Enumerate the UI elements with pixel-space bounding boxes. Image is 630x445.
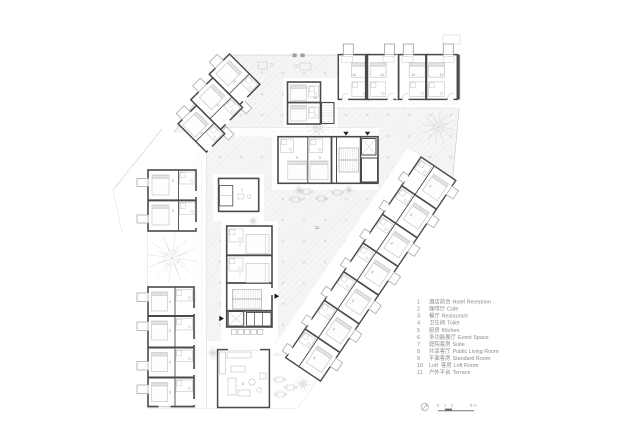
svg-text:Terrace: Terrace bbox=[453, 370, 471, 376]
svg-text:8: 8 bbox=[242, 382, 244, 386]
svg-text:卫生间: 卫生间 bbox=[429, 319, 445, 327]
svg-text:餐厅: 餐厅 bbox=[429, 312, 440, 320]
svg-text:10: 10 bbox=[313, 96, 317, 100]
svg-text:9: 9 bbox=[172, 209, 174, 213]
svg-text:酒店前台: 酒店前台 bbox=[429, 298, 451, 306]
svg-text:6: 6 bbox=[417, 335, 420, 341]
svg-text:Cafe: Cafe bbox=[447, 307, 458, 313]
svg-text:咖啡厅: 咖啡厅 bbox=[429, 305, 446, 313]
svg-text:2: 2 bbox=[417, 307, 420, 313]
svg-text:2: 2 bbox=[241, 188, 243, 192]
svg-text:7: 7 bbox=[239, 244, 241, 248]
svg-text:1: 1 bbox=[417, 300, 420, 306]
svg-text:Kitchen: Kitchen bbox=[442, 328, 460, 334]
svg-text:5: 5 bbox=[417, 328, 420, 334]
svg-text:Loft Room: Loft Room bbox=[454, 363, 479, 369]
svg-text:9: 9 bbox=[169, 300, 171, 304]
svg-text:Suite: Suite bbox=[453, 342, 465, 348]
svg-text:9: 9 bbox=[172, 179, 174, 183]
svg-text:Toilet: Toilet bbox=[447, 321, 460, 327]
svg-text:共享客厅: 共享客厅 bbox=[429, 347, 451, 355]
svg-text:5 m: 5 m bbox=[470, 402, 477, 407]
svg-text:10: 10 bbox=[381, 73, 385, 77]
svg-text:10: 10 bbox=[417, 363, 423, 369]
svg-text:7: 7 bbox=[417, 342, 420, 348]
svg-text:10: 10 bbox=[440, 73, 444, 77]
svg-text:Hotel Reception: Hotel Reception bbox=[453, 300, 491, 306]
svg-text:庭院套房: 庭院套房 bbox=[429, 340, 451, 348]
svg-text:11: 11 bbox=[315, 225, 320, 230]
svg-text:11: 11 bbox=[417, 370, 423, 376]
svg-text:客房: 客房 bbox=[441, 361, 452, 369]
svg-text:Restaurant: Restaurant bbox=[442, 314, 469, 320]
svg-text:Standard Room: Standard Room bbox=[453, 356, 491, 362]
svg-text:9: 9 bbox=[319, 156, 321, 160]
svg-text:9: 9 bbox=[417, 356, 420, 362]
svg-text:平面客房: 平面客房 bbox=[429, 354, 451, 362]
svg-text:9: 9 bbox=[169, 361, 171, 365]
svg-text:厨房: 厨房 bbox=[429, 326, 440, 334]
svg-text:10: 10 bbox=[411, 73, 415, 77]
svg-text:9: 9 bbox=[296, 156, 298, 160]
svg-text:4: 4 bbox=[417, 321, 420, 327]
svg-text:Loft: Loft bbox=[429, 363, 438, 369]
svg-text:多功能展厅: 多功能展厅 bbox=[429, 333, 457, 341]
svg-text:8: 8 bbox=[417, 349, 420, 355]
svg-text:3: 3 bbox=[417, 314, 420, 320]
svg-text:9: 9 bbox=[169, 329, 171, 333]
svg-text:Public Living Room: Public Living Room bbox=[453, 349, 500, 355]
svg-text:9: 9 bbox=[169, 391, 171, 395]
svg-text:户外平台: 户外平台 bbox=[429, 368, 451, 376]
svg-text:Event Space: Event Space bbox=[458, 335, 489, 341]
svg-text:10: 10 bbox=[352, 73, 356, 77]
svg-text:7: 7 bbox=[239, 273, 241, 277]
